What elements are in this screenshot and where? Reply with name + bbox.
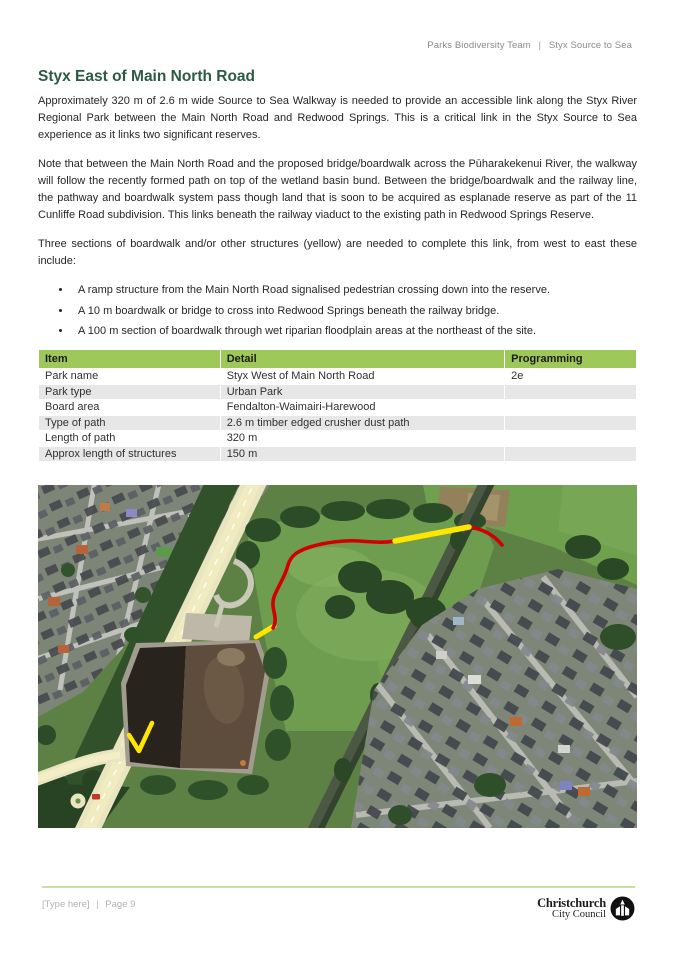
- table-cell: [505, 415, 637, 431]
- table-cell: Length of path: [39, 431, 221, 447]
- table-header-detail: Detail: [220, 350, 504, 369]
- table-header-row: Item Detail Programming: [39, 350, 637, 369]
- table-cell: Type of path: [39, 415, 221, 431]
- table-cell: 2.6 m timber edged crusher dust path: [220, 415, 504, 431]
- table-cell: 320 m: [220, 431, 504, 447]
- footer-page-number: Page 9: [105, 899, 135, 910]
- document-page: Parks Biodiversity Team | Styx Source to…: [0, 0, 675, 955]
- table-cell: Board area: [39, 400, 221, 416]
- table-cell: Approx length of structures: [39, 446, 221, 462]
- page-title: Styx East of Main North Road: [38, 68, 637, 86]
- table-cell: Fendalton-Waimairi-Harewood: [220, 400, 504, 416]
- map-wetland-basin-pond: [121, 640, 270, 774]
- table-cell: Park type: [39, 384, 221, 400]
- type-here-placeholder: [Type here]: [42, 899, 90, 910]
- table-cell: 2e: [505, 369, 637, 385]
- page-header: Parks Biodiversity Team | Styx Source to…: [0, 0, 675, 51]
- paragraph-route-note: Note that between the Main North Road an…: [38, 156, 637, 224]
- table-row: Park name Styx West of Main North Road 2…: [39, 369, 637, 385]
- paragraph-intro: Approximately 320 m of 2.6 m wide Source…: [38, 93, 637, 144]
- table-header-item: Item: [39, 350, 221, 369]
- footer-rule: [42, 886, 635, 888]
- table-row: Length of path 320 m: [39, 431, 637, 447]
- header-project-name: Styx Source to Sea: [549, 40, 632, 51]
- bullet-ramp: A ramp structure from the Main North Roa…: [72, 282, 637, 299]
- table-cell: 150 m: [220, 446, 504, 462]
- table-cell: [505, 384, 637, 400]
- park-info-table: Item Detail Programming Park name Styx W…: [38, 349, 637, 462]
- council-logo: Christchurch City Council: [537, 896, 635, 921]
- page-footer: [Type here] | Page 9 Christchurch City C…: [42, 886, 635, 921]
- bullet-boardwalk-bridge: A 10 m boardwalk or bridge to cross into…: [72, 303, 637, 320]
- council-name-line1: Christchurch: [537, 898, 606, 909]
- council-name-line2: City Council: [537, 909, 606, 920]
- road-shield-icon: [92, 794, 100, 800]
- table-row: Approx length of structures 150 m: [39, 446, 637, 462]
- table-row: Board area Fendalton-Waimairi-Harewood: [39, 400, 637, 416]
- table-cell: [505, 446, 637, 462]
- header-team-name: Parks Biodiversity Team: [427, 40, 531, 51]
- table-cell: [505, 400, 637, 416]
- header-divider: |: [539, 40, 542, 51]
- table-cell: Park name: [39, 369, 221, 385]
- footer-divider: |: [96, 899, 98, 910]
- paragraph-sections-intro: Three sections of boardwalk and/or other…: [38, 236, 637, 270]
- table-header-programming: Programming: [505, 350, 637, 369]
- aerial-map-image: [38, 485, 637, 828]
- council-cathedral-icon: [610, 896, 635, 921]
- map-machinery-dot: [240, 760, 246, 766]
- structures-bullet-list: A ramp structure from the Main North Roa…: [38, 282, 637, 340]
- bullet-floodplain-boardwalk: A 100 m section of boardwalk through wet…: [72, 323, 637, 340]
- table-row: Park type Urban Park: [39, 384, 637, 400]
- aerial-map: [38, 485, 637, 828]
- table-cell: Urban Park: [220, 384, 504, 400]
- council-logo-text: Christchurch City Council: [537, 898, 606, 920]
- footer-left-text: [Type here] | Page 9: [42, 896, 135, 910]
- document-content: Styx East of Main North Road Approximate…: [38, 68, 637, 828]
- table-cell: [505, 431, 637, 447]
- table-cell: Styx West of Main North Road: [220, 369, 504, 385]
- table-row: Type of path 2.6 m timber edged crusher …: [39, 415, 637, 431]
